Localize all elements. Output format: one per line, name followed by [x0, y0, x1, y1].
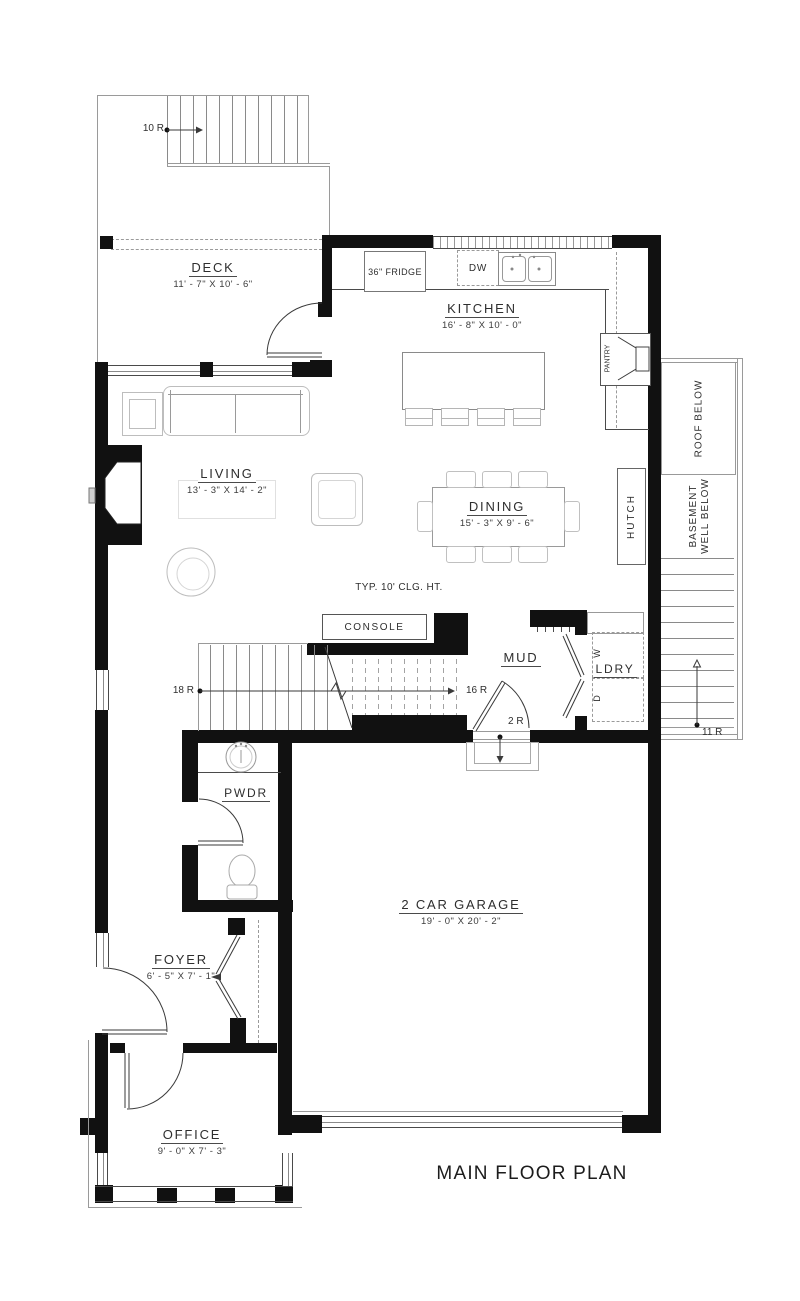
roof-overhang-dash	[111, 249, 322, 250]
wall	[198, 900, 293, 912]
upper-stair-riser-label: 16 R	[466, 685, 487, 696]
room-label-laundry: LDRY	[575, 662, 655, 678]
fridge: 36" FRIDGE	[364, 251, 426, 292]
island-stool	[513, 408, 541, 426]
wall	[575, 610, 587, 635]
foyer-dims: 6' - 5" X 7' - 1"	[147, 971, 216, 982]
wall	[530, 610, 577, 627]
upper-stair-treads	[352, 655, 460, 715]
office-window-sill	[95, 1201, 293, 1202]
foyer-window	[96, 933, 109, 967]
vanity-edge	[198, 772, 281, 773]
coat-hook	[537, 627, 538, 632]
hutch-label: HUTCH	[626, 494, 637, 539]
deck-name: DECK	[189, 260, 236, 277]
deck-dims: 11' - 7" X 10' - 6"	[173, 279, 252, 290]
coat-hook	[553, 627, 554, 632]
room-label-foyer: FOYER 6' - 5" X 7' - 1"	[121, 952, 241, 982]
console-label: CONSOLE	[344, 622, 404, 633]
threshold	[473, 739, 530, 740]
garage-door	[322, 1116, 622, 1128]
wall	[292, 362, 310, 377]
door-jamb	[230, 1018, 246, 1047]
powder-name: PWDR	[222, 786, 270, 802]
living-dims: 13' - 3" X 14' - 2"	[187, 485, 267, 496]
room-label-powder: PWDR	[186, 786, 306, 802]
floor-plan: 10 R 36" FRI	[0, 0, 800, 1301]
fireplace-mass	[95, 445, 142, 545]
dining-name: DINING	[467, 499, 527, 516]
sink-basin	[528, 256, 552, 282]
living-window	[108, 365, 200, 376]
ceiling-dash	[258, 920, 259, 1043]
threshold	[473, 731, 530, 732]
deck-stair-treads	[167, 96, 308, 163]
hall-window	[96, 670, 109, 710]
sink-basin	[502, 256, 526, 282]
garage-step	[474, 742, 531, 764]
deck-stair-riser-label: 10 R	[134, 123, 164, 134]
hutch: HUTCH	[617, 468, 646, 565]
wall	[100, 236, 113, 249]
dining-dims: 15' - 3" X 9' - 6"	[460, 518, 534, 529]
side-edge	[661, 358, 742, 359]
side-edge	[661, 734, 737, 735]
wall	[332, 235, 433, 248]
room-label-dining: DINING 15' - 3" X 9' - 6"	[437, 499, 557, 529]
roof-overhang-dash	[111, 239, 322, 240]
kitchen-island	[402, 352, 545, 410]
laundry-cabinet	[587, 612, 644, 634]
foyer-name: FOYER	[152, 952, 210, 969]
wall	[322, 235, 332, 302]
island-stool	[405, 408, 433, 426]
island-stool	[477, 408, 505, 426]
wall	[95, 362, 108, 377]
coat-hook	[545, 627, 546, 632]
main-stair-treads	[210, 645, 340, 730]
door-jamb	[228, 918, 245, 935]
room-label-garage: 2 CAR GARAGE 19' - 0" X 20' - 2"	[391, 897, 531, 927]
living-window	[213, 365, 292, 376]
dining-chair	[518, 546, 548, 563]
roof-below-label: ROOF BELOW	[693, 380, 704, 458]
washer-label-box: W	[590, 646, 604, 660]
wall	[95, 1033, 108, 1153]
garage-entry-leaf	[216, 981, 238, 1019]
wall	[95, 545, 108, 670]
swivel-chair	[167, 548, 215, 596]
stair-edge	[308, 95, 309, 164]
side-edge	[661, 739, 742, 740]
wall	[95, 377, 108, 445]
washer-label: W	[592, 648, 602, 658]
deck-edge	[167, 166, 330, 167]
wall	[278, 1115, 322, 1133]
side-stair-treads	[661, 558, 734, 728]
ceiling-note: TYP. 10' CLG. HT.	[334, 582, 464, 593]
laundry-name: LDRY	[594, 662, 637, 678]
room-label-kitchen: KITCHEN 16' - 8" X 10' - 0"	[422, 301, 542, 331]
basement-well-label-box: BASEMENT WELL BELOW	[652, 474, 748, 558]
mud-name: MUD	[501, 650, 540, 667]
porch-edge	[88, 1040, 89, 1207]
wall	[530, 730, 661, 743]
table-lamp	[129, 399, 156, 429]
dining-chair	[518, 471, 548, 488]
main-stair-riser-label: 18 R	[164, 685, 194, 696]
dryer-label-box: D	[590, 691, 604, 705]
room-label-mud: MUD	[461, 650, 581, 667]
garage-name: 2 CAR GARAGE	[399, 897, 522, 914]
deck-edge	[329, 166, 330, 236]
kitchen-window	[433, 236, 612, 249]
office-name: OFFICE	[161, 1127, 223, 1144]
laundry-door-leaf	[563, 679, 581, 716]
office-window-sill	[95, 1186, 293, 1187]
powder-door-arc	[199, 799, 243, 843]
wall	[434, 613, 468, 643]
living-name: LIVING	[198, 466, 255, 483]
office-window-west	[97, 1153, 108, 1185]
powder-sink	[226, 742, 256, 772]
coat-hook	[569, 627, 570, 632]
dining-chair	[482, 546, 512, 563]
office-door-arc	[127, 1053, 183, 1109]
roof-below-box: ROOF BELOW	[661, 362, 736, 475]
basement-well-label: BASEMENT WELL BELOW	[688, 478, 712, 554]
pantry-label: PANTRY	[605, 345, 612, 373]
wall	[352, 715, 467, 731]
wall	[110, 1043, 125, 1053]
dishwasher: DW	[457, 250, 499, 286]
sofa-line	[168, 394, 303, 395]
wall	[310, 360, 332, 377]
kitchen-name: KITCHEN	[445, 301, 519, 318]
office-dims: 9' - 0" X 7' - 3"	[158, 1146, 227, 1157]
dining-chair	[482, 471, 512, 488]
wall	[95, 710, 108, 933]
office-window-east	[282, 1153, 293, 1186]
porch-edge	[88, 1207, 302, 1208]
side-stair-riser-label: 11 R	[702, 727, 722, 738]
wall	[622, 1115, 661, 1133]
pantry-label-box: PANTRY	[599, 334, 617, 383]
dryer-label: D	[592, 694, 602, 702]
console-table: CONSOLE	[322, 614, 427, 640]
garage-header	[293, 1111, 623, 1112]
wall	[198, 730, 473, 743]
dining-chair	[564, 501, 580, 532]
island-stool	[441, 408, 469, 426]
stair-edge	[198, 643, 308, 644]
counter-edge	[605, 429, 649, 430]
garage-step-riser-label: 2 R	[508, 716, 524, 727]
wall	[575, 716, 587, 743]
dining-chair	[417, 501, 433, 532]
sofa-line	[300, 390, 301, 433]
wall	[182, 845, 198, 912]
room-label-living: LIVING 13' - 3" X 14' - 2"	[167, 466, 287, 496]
deck-edge	[97, 95, 98, 363]
sofa-line	[170, 390, 171, 433]
garage-dims: 19' - 0" X 20' - 2"	[421, 916, 501, 927]
side-stair-edge	[661, 727, 734, 728]
plan-title: MAIN FLOOR PLAN	[427, 1163, 637, 1185]
kitchen-dims: 16' - 8" X 10' - 0"	[442, 320, 522, 331]
wall	[200, 362, 213, 377]
dining-chair	[446, 546, 476, 563]
armchair-seat	[318, 480, 356, 519]
room-label-office: OFFICE 9' - 0" X 7' - 3"	[132, 1127, 252, 1157]
basement-well-line2: WELL BELOW	[700, 478, 712, 554]
toilet	[229, 855, 255, 887]
basement-well-line1: BASEMENT	[688, 478, 700, 554]
deck-edge	[167, 163, 330, 164]
coat-hook	[561, 627, 562, 632]
deck-door-arc	[267, 303, 322, 355]
room-label-deck: DECK 11' - 7" X 10' - 6"	[153, 260, 273, 290]
sofa-line	[235, 394, 236, 433]
door-jamb	[318, 302, 332, 317]
dining-chair	[446, 471, 476, 488]
stair-edge	[198, 643, 199, 731]
fridge-label: 36" FRIDGE	[368, 267, 422, 277]
dishwasher-label: DW	[469, 263, 487, 274]
